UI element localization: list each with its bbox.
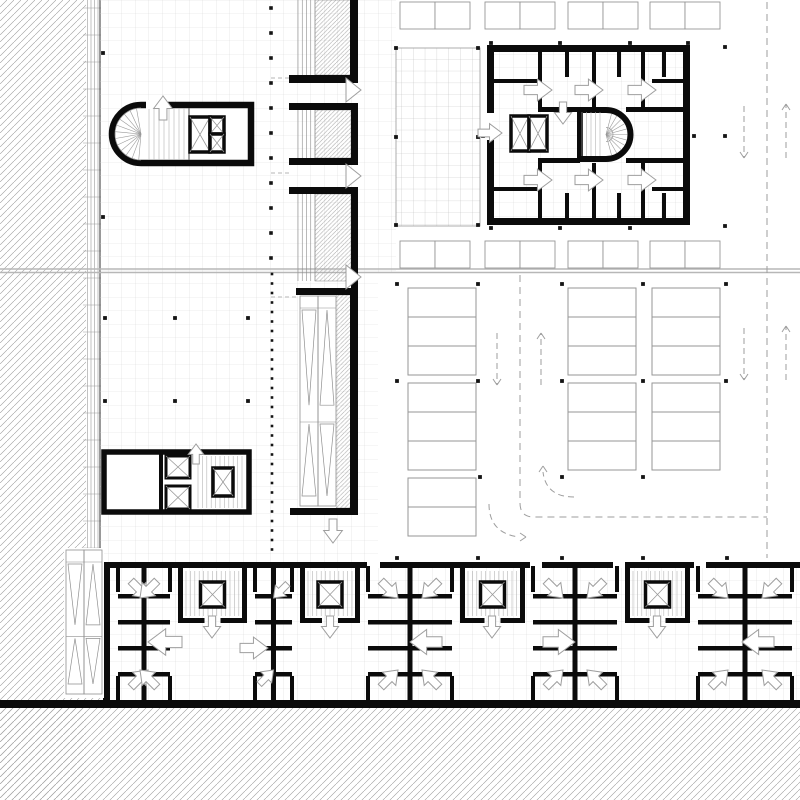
- wall: [410, 620, 452, 625]
- dash-arrowhead: [497, 379, 501, 385]
- wall: [118, 646, 144, 651]
- wall: [683, 52, 690, 218]
- column-dot: [271, 311, 274, 314]
- wall: [487, 45, 690, 52]
- dash-arrowhead: [786, 104, 790, 110]
- wall: [573, 566, 578, 702]
- column-dot: [723, 134, 727, 138]
- column-dot: [101, 51, 105, 55]
- column-dot: [269, 156, 273, 160]
- parking-stall-group: [408, 383, 476, 470]
- parking-stall: [435, 2, 470, 29]
- column-dot: [271, 548, 274, 551]
- column-dot: [724, 282, 728, 286]
- column-dot: [271, 444, 274, 447]
- column-dot: [271, 463, 274, 466]
- wall: [698, 620, 745, 625]
- wall: [626, 107, 690, 112]
- column-dot: [641, 556, 645, 560]
- column-dot: [641, 282, 645, 286]
- wall: [253, 676, 257, 702]
- wall: [617, 52, 621, 77]
- column-dot: [271, 330, 274, 333]
- wall: [487, 218, 690, 225]
- wall: [289, 103, 358, 110]
- wall: [168, 676, 172, 702]
- column-dot: [271, 339, 274, 342]
- wall: [255, 620, 274, 625]
- column-dot: [476, 46, 480, 50]
- column-dot: [271, 453, 274, 456]
- tile-grid: [358, 272, 378, 562]
- wall: [565, 52, 569, 77]
- column-dot: [271, 396, 274, 399]
- wall: [350, 288, 358, 515]
- dash-arrowhead: [782, 104, 786, 110]
- column-dot: [271, 415, 274, 418]
- wall: [408, 566, 413, 702]
- wall: [531, 676, 535, 702]
- column-dot: [173, 399, 177, 403]
- dash-arrowhead: [744, 374, 748, 380]
- wall: [296, 288, 356, 295]
- wall: [144, 620, 170, 625]
- wall: [274, 620, 293, 625]
- column-dot: [395, 282, 399, 286]
- wall: [520, 568, 525, 622]
- wall: [350, 0, 358, 83]
- column-dot: [271, 349, 274, 352]
- column-dot: [692, 134, 696, 138]
- drive-lane-line: [520, 503, 767, 517]
- column-dot: [271, 491, 274, 494]
- wall: [168, 566, 172, 592]
- column-dot: [271, 529, 274, 532]
- column-dot: [724, 379, 728, 383]
- wall: [625, 618, 650, 623]
- column-dot: [103, 316, 107, 320]
- wall: [662, 193, 666, 218]
- column-dot: [271, 377, 274, 380]
- stair-core-midwest: [104, 452, 249, 512]
- column-dot: [269, 31, 273, 35]
- column-dot: [173, 316, 177, 320]
- column-dot: [271, 368, 274, 371]
- column-dot: [560, 475, 564, 479]
- column-dot: [271, 425, 274, 428]
- wall: [289, 187, 358, 194]
- column-dot: [271, 520, 274, 523]
- wall: [487, 140, 494, 218]
- dash-arrowhead: [493, 379, 497, 385]
- parking-stall-group: [408, 288, 476, 375]
- dash-arrowhead: [744, 152, 748, 158]
- wall: [103, 562, 110, 703]
- parking-stall: [650, 2, 685, 29]
- wall: [450, 566, 454, 592]
- parking-stall-group: [652, 383, 720, 470]
- column-dot: [489, 41, 493, 45]
- column-dot: [476, 282, 480, 286]
- dash-arrowhead: [539, 466, 543, 472]
- column-dot: [269, 56, 273, 60]
- wall: [366, 566, 370, 592]
- parking-stall: [685, 2, 720, 29]
- column-dot: [476, 379, 480, 383]
- parking-stall: [650, 241, 685, 268]
- shaft-hatch-area: [315, 110, 351, 158]
- column-dot: [271, 510, 274, 513]
- wall: [592, 52, 596, 107]
- wall: [662, 52, 666, 77]
- wall: [290, 508, 356, 515]
- column-dot: [560, 282, 564, 286]
- wall: [490, 187, 538, 191]
- column-dot: [394, 135, 398, 139]
- wall: [159, 452, 163, 512]
- wall: [538, 158, 580, 163]
- parking-stall: [685, 241, 720, 268]
- column-dot: [478, 475, 482, 479]
- wall: [366, 676, 370, 702]
- dash-arrowhead: [541, 333, 545, 339]
- wall: [617, 193, 621, 218]
- column-dot: [271, 539, 274, 542]
- column-dot: [271, 406, 274, 409]
- wall: [460, 618, 485, 623]
- parking-stall: [520, 241, 555, 268]
- dash-arrowhead: [520, 537, 526, 541]
- wall: [533, 620, 575, 625]
- wall: [460, 568, 465, 622]
- stair-core-wall: [112, 105, 251, 163]
- wall: [592, 163, 596, 218]
- drive-turn-arrow: [489, 504, 519, 537]
- wall: [696, 676, 700, 702]
- wall: [253, 566, 257, 592]
- parking-stall-group: [652, 288, 720, 375]
- wall: [255, 594, 274, 599]
- floor-plan-canvas: [0, 0, 800, 800]
- parking-stall: [520, 2, 555, 29]
- column-dot: [103, 399, 107, 403]
- dash-arrowhead: [740, 374, 744, 380]
- wall: [615, 566, 619, 592]
- column-dot: [560, 379, 564, 383]
- wall: [696, 566, 700, 592]
- column-dot: [723, 45, 727, 49]
- wall: [351, 103, 358, 165]
- column-dot: [395, 379, 399, 383]
- column-dot: [269, 131, 273, 135]
- dash-arrowhead: [740, 152, 744, 158]
- parking-stall: [603, 2, 638, 29]
- wall: [501, 618, 526, 623]
- wall: [745, 620, 792, 625]
- wall: [615, 676, 619, 702]
- hatch-area: [0, 704, 800, 800]
- wall: [221, 618, 248, 623]
- column-dot: [271, 282, 274, 285]
- column-dot: [246, 316, 250, 320]
- column-dot: [725, 556, 729, 560]
- column-dot: [628, 41, 632, 45]
- column-dot: [723, 224, 727, 228]
- wall: [116, 676, 120, 702]
- wall: [274, 672, 293, 677]
- stair-core-northwest: [112, 100, 251, 163]
- wall: [116, 566, 120, 592]
- column-dot: [394, 46, 398, 50]
- wall: [575, 620, 617, 625]
- wall: [575, 646, 617, 651]
- tile-grid: [396, 48, 480, 226]
- column-dot: [269, 6, 273, 10]
- column-dot: [269, 206, 273, 210]
- dash-arrowhead: [782, 326, 786, 332]
- column-dot: [271, 301, 274, 304]
- wall: [368, 620, 410, 625]
- wall: [685, 568, 690, 622]
- column-dot: [271, 434, 274, 437]
- wall: [666, 618, 691, 623]
- drive-turn-arrow: [543, 472, 574, 497]
- dash-arrowhead: [520, 533, 526, 537]
- wall: [743, 566, 748, 702]
- wall: [652, 187, 683, 191]
- column-dot: [271, 482, 274, 485]
- column-dot: [271, 358, 274, 361]
- wall: [300, 568, 305, 622]
- column-dot: [271, 501, 274, 504]
- wall: [565, 193, 569, 218]
- plan-layers: [0, 0, 800, 800]
- wall: [626, 158, 690, 163]
- column-dot: [246, 399, 250, 403]
- wall: [178, 618, 205, 623]
- column-dot: [641, 475, 645, 479]
- wall: [355, 568, 360, 622]
- wall: [490, 79, 538, 83]
- dash-arrowhead: [537, 333, 541, 339]
- wall: [290, 566, 294, 592]
- parking-stall-group: [568, 383, 636, 470]
- dash-arrowhead: [786, 326, 790, 332]
- tile-grid: [358, 0, 396, 272]
- column-dot: [558, 226, 562, 230]
- wall: [300, 618, 322, 623]
- column-dot: [476, 223, 480, 227]
- parking-stall: [568, 2, 603, 29]
- column-dot: [269, 256, 273, 260]
- column-dot: [394, 223, 398, 227]
- column-dot: [686, 41, 690, 45]
- wall: [698, 646, 745, 651]
- parking-stall: [485, 241, 520, 268]
- parking-stall: [400, 2, 435, 29]
- wall: [790, 676, 794, 702]
- column-dot: [269, 231, 273, 235]
- floor-plan-drawing: [0, 0, 800, 800]
- parking-stall: [568, 241, 603, 268]
- wall: [368, 646, 410, 651]
- wall: [178, 568, 183, 622]
- shaft-hatch-area: [336, 295, 351, 508]
- wall: [274, 646, 293, 651]
- wall: [450, 676, 454, 702]
- column-dot: [101, 215, 105, 219]
- wall: [242, 568, 247, 622]
- column-dot: [269, 81, 273, 85]
- wall: [531, 566, 535, 592]
- column-dot: [395, 556, 399, 560]
- wall: [289, 158, 358, 165]
- column-dot: [269, 106, 273, 110]
- wall: [790, 566, 794, 592]
- wall: [338, 618, 360, 623]
- column-dot: [271, 273, 274, 276]
- parking-stall: [400, 241, 435, 268]
- column-dot: [628, 226, 632, 230]
- wall: [290, 676, 294, 702]
- column-dot: [641, 379, 645, 383]
- parking-stall: [435, 241, 470, 268]
- column-dot: [271, 472, 274, 475]
- parking-stall: [603, 241, 638, 268]
- column-dot: [269, 181, 273, 185]
- column-dot: [271, 387, 274, 390]
- shaft-hatch-area: [315, 0, 351, 75]
- column-dot: [476, 556, 480, 560]
- column-dot: [560, 556, 564, 560]
- column-dot: [558, 41, 562, 45]
- wall: [118, 620, 144, 625]
- wall: [625, 568, 630, 622]
- parking-stall-group: [568, 288, 636, 375]
- wall: [652, 79, 683, 83]
- column-dot: [271, 320, 274, 323]
- column-dot: [271, 292, 274, 295]
- column-dot: [489, 226, 493, 230]
- dash-arrowhead: [543, 466, 547, 472]
- parking-stall: [485, 2, 520, 29]
